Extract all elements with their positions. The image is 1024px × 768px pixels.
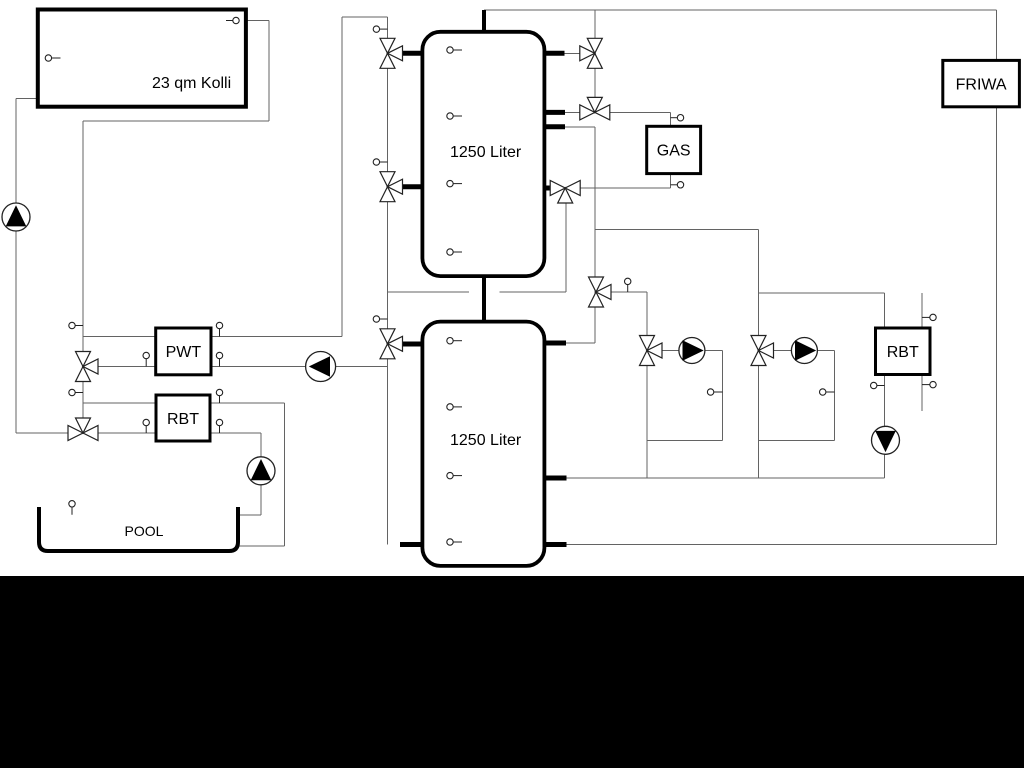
svg-text:RBT: RBT <box>167 411 199 428</box>
svg-text:1250 Liter: 1250 Liter <box>450 144 522 161</box>
svg-text:FRIWA: FRIWA <box>956 76 1007 93</box>
svg-text:PWT: PWT <box>166 344 202 361</box>
svg-text:1250 Liter: 1250 Liter <box>450 432 522 449</box>
svg-text:POOL: POOL <box>125 523 164 539</box>
svg-text:23 qm Kolli: 23 qm Kolli <box>152 75 231 92</box>
svg-text:GAS: GAS <box>657 143 691 160</box>
svg-text:RBT: RBT <box>887 344 919 361</box>
